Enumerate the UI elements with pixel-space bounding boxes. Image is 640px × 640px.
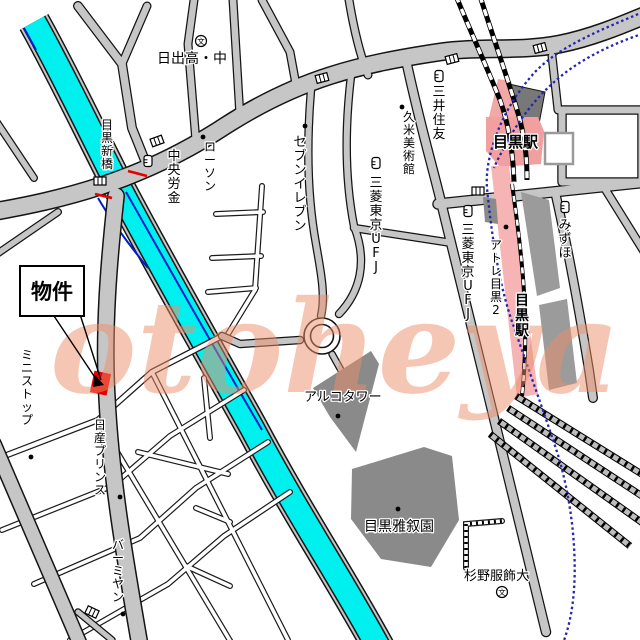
bank-icon xyxy=(372,158,380,169)
poi-dot-icon xyxy=(303,124,308,129)
label-meguro-shinbashi: 目黒新橋 xyxy=(101,118,113,171)
poi-dot-icon xyxy=(396,507,401,512)
label-meguro-station-main: 目黒駅 xyxy=(493,133,539,151)
poi-dot-icon xyxy=(118,495,123,500)
bank-icon xyxy=(144,156,152,167)
label-chuo-rokin: 中央労金 xyxy=(167,149,180,206)
bank-icon xyxy=(561,202,569,213)
label-hinode-school: 日出高・中 xyxy=(157,50,227,67)
bank-icon xyxy=(464,206,472,217)
poi-dot-icon xyxy=(201,135,206,140)
label-kume-museum: 久米美術館 xyxy=(403,110,415,176)
school-icon xyxy=(497,587,508,598)
poi-dot-icon xyxy=(336,414,341,419)
label-meguro-gajoen: 目黒雅叙園 xyxy=(364,518,434,535)
label-ministop: ミニストップ xyxy=(21,348,33,427)
label-arco-tower: アルコタワー xyxy=(304,390,382,405)
school-icon xyxy=(196,36,207,47)
poi-dot-icon xyxy=(29,455,34,460)
label-lawson: ローソン xyxy=(204,140,216,193)
label-sugino-fashion-college: 杉野服飾大 xyxy=(464,569,529,584)
label-meguro-station-south: 目黒駅 xyxy=(515,293,530,339)
signal-icon xyxy=(94,177,106,185)
bank-icon xyxy=(435,71,443,82)
label-nissan-prince: 日産プリンス xyxy=(94,418,106,497)
property-label: 物件 xyxy=(31,280,73,304)
poi-dot-icon xyxy=(504,225,509,230)
label-mitsui-sumitomo: 三井住友 xyxy=(432,85,445,142)
label-mizuho: みずほ xyxy=(558,218,571,261)
meguro-area-map: 文 xyxy=(0,0,640,640)
label-seven-eleven: セブンイレブン xyxy=(293,135,306,234)
map-stage: 文 xyxy=(0,0,640,640)
poi-dot-icon xyxy=(400,105,405,110)
signal-icon xyxy=(472,187,484,195)
label-bamiyan: バーミヤン xyxy=(112,538,124,604)
poi-dot-icon xyxy=(121,612,126,617)
building-east-of-station xyxy=(545,133,573,164)
